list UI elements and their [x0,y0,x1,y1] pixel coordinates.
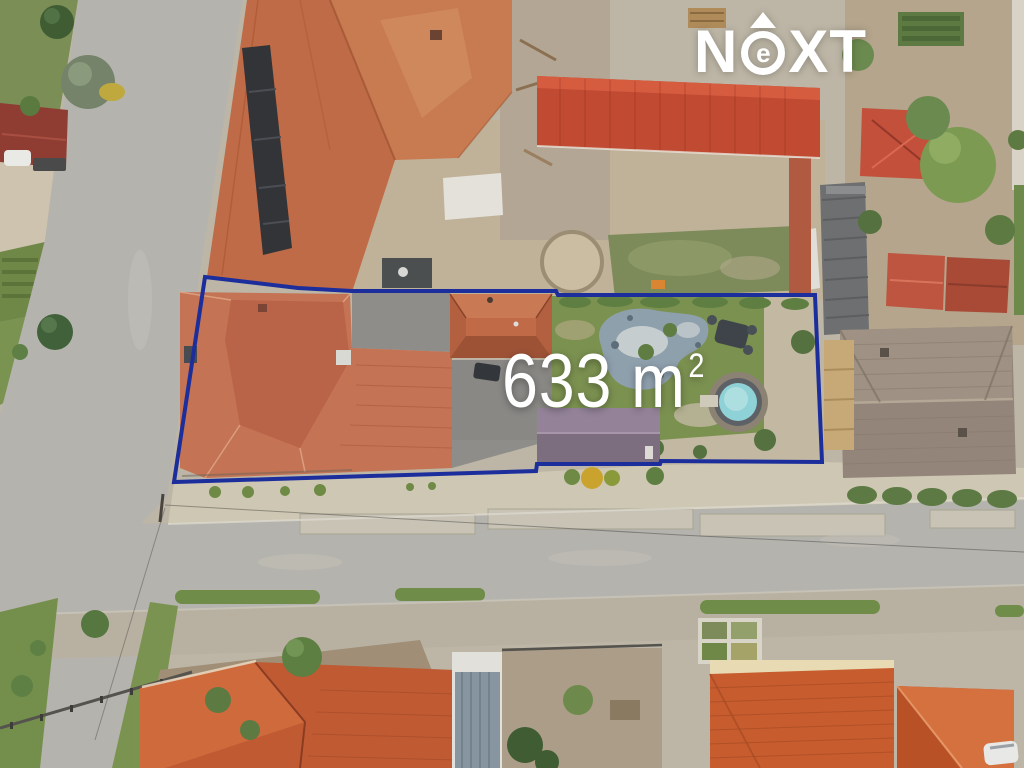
white-tarp-2 [443,173,503,220]
gravel-circle [542,232,602,292]
bottom-house-4 [897,686,1019,768]
red-shed [537,76,820,158]
bottom-house-1 [140,661,455,768]
area-value: 633 m [502,339,686,424]
logo-letter-n: N [694,29,738,75]
parcel [180,292,822,478]
circle-icon: e [741,31,785,75]
wood-deck [824,340,854,450]
bottom-house-3 [710,660,894,768]
right-house-gables [886,253,1010,313]
orange-crate [651,280,665,289]
logo-letter-e: e [756,40,770,66]
aerial-photo: 633 m2 N e XT [0,0,1024,768]
brick-wall [789,158,811,293]
door [645,446,653,459]
bottom-house-2 [452,652,502,768]
up-arrow-icon [750,12,776,28]
cold-frames [698,618,762,664]
logo-letters-xt: XT [788,29,867,75]
next-logo: N e XT [694,12,867,75]
area-superscript: 2 [688,347,705,385]
area-label: 633 m2 [502,338,703,425]
white-car [4,150,31,166]
logo-e-mark: e [741,12,785,75]
chimney [336,350,351,365]
gray-narrow-building [820,182,869,335]
right-house-roof [840,326,1016,478]
